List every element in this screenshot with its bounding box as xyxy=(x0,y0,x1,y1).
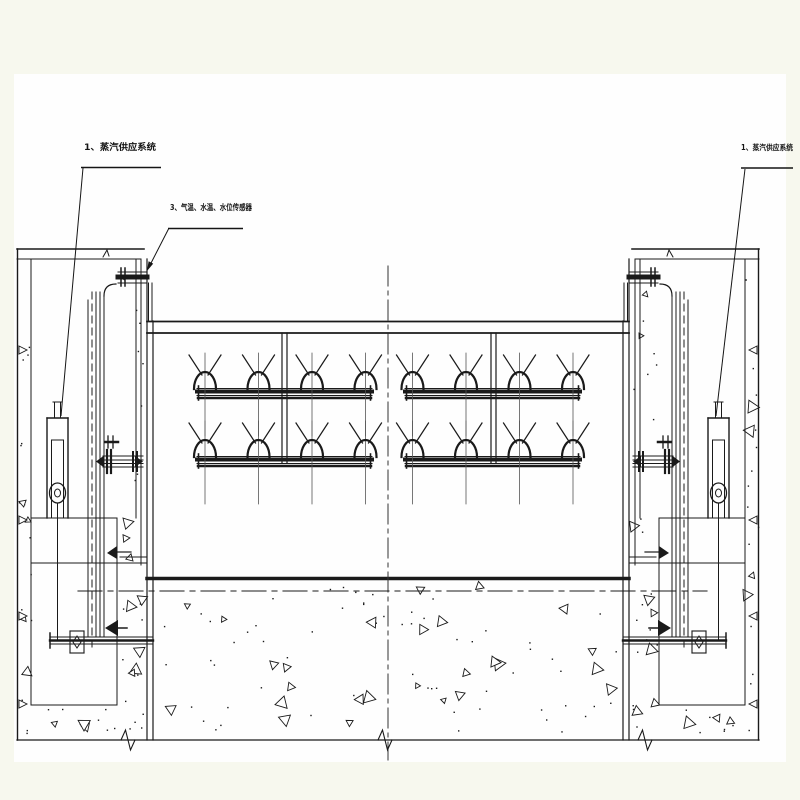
label-sensors-text: 3、气温、水温、水位传感器 xyxy=(170,202,253,212)
cad-section-drawing: 1、蒸汽供应系统 3、气温、水温、水位传感器 1、蒸汽供应系统 xyxy=(0,0,800,800)
drawing-page: 1、蒸汽供应系统 3、气温、水温、水位传感器 1、蒸汽供应系统 xyxy=(0,0,800,800)
label-steam-supply-right-text: 1、蒸汽供应系统 xyxy=(741,142,793,152)
label-steam-supply-left-text: 1、蒸汽供应系统 xyxy=(84,141,156,153)
drawing-sheet xyxy=(14,74,786,762)
